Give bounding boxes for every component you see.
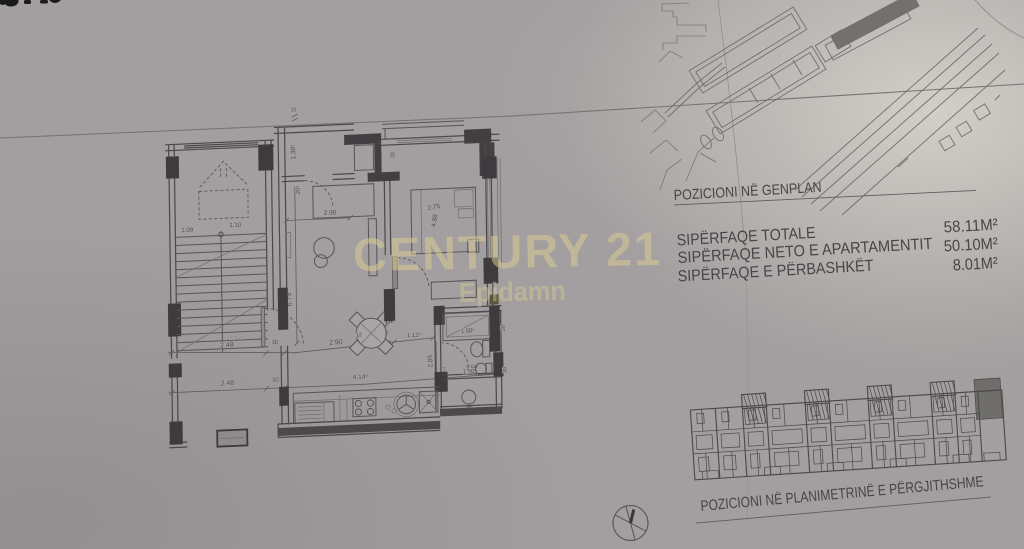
svg-text:4.14⁵: 4.14⁵: [353, 374, 369, 382]
svg-text:58.11M²: 58.11M²: [943, 216, 998, 236]
svg-text:1.09: 1.09: [181, 228, 194, 235]
svg-text:30: 30: [502, 367, 508, 373]
svg-text:2.90: 2.90: [329, 339, 343, 347]
svg-text:2.48: 2.48: [220, 380, 234, 388]
svg-text:8.01M²: 8.01M²: [952, 255, 998, 275]
svg-text:30: 30: [271, 340, 279, 346]
svg-text:2.90: 2.90: [324, 209, 337, 217]
svg-text:1.12⁵: 1.12⁵: [407, 332, 422, 340]
svg-text:2.85: 2.85: [427, 354, 434, 367]
svg-text:11: 11: [291, 107, 297, 113]
svg-text:HYRJE: HYRJE: [225, 333, 246, 341]
svg-text:1.10: 1.10: [229, 223, 242, 230]
svg-text:12: 12: [356, 332, 362, 338]
svg-text:2.48: 2.48: [220, 342, 234, 350]
svg-text:1.38¹: 1.38¹: [290, 144, 298, 160]
svg-text:20: 20: [501, 325, 507, 331]
svg-text:30: 30: [272, 377, 280, 383]
svg-text:20: 20: [390, 152, 396, 158]
svg-text:20¹: 20¹: [296, 185, 302, 194]
svg-text:CENTURY 21: CENTURY 21: [352, 222, 662, 281]
svg-text:50.10M²: 50.10M²: [943, 236, 998, 256]
svg-text:Epidamn: Epidamn: [459, 276, 567, 308]
svg-text:1.50⁵: 1.50⁵: [460, 327, 475, 335]
